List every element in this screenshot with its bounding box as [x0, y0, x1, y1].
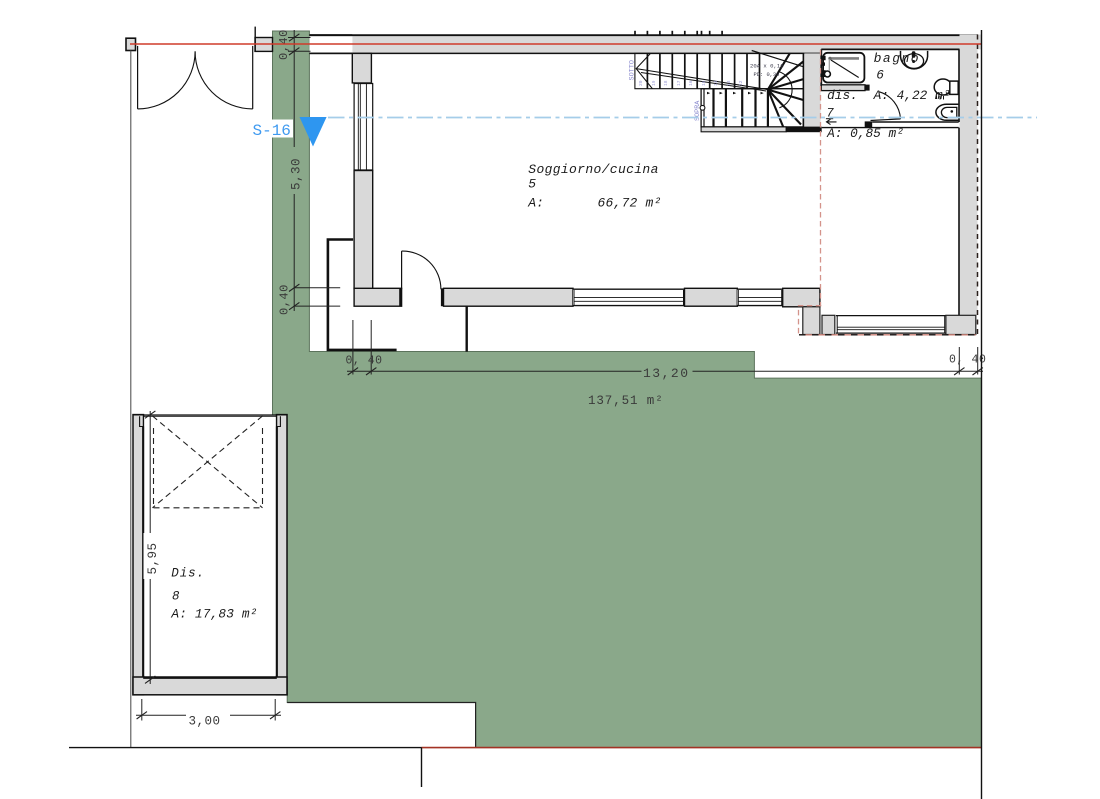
svg-text:Soggiorno/cucina: Soggiorno/cucina	[528, 162, 658, 177]
svg-text:5,95: 5,95	[146, 542, 160, 574]
svg-text:S-16: S-16	[253, 122, 291, 140]
svg-text:20A x 0,16: 20A x 0,16	[750, 62, 784, 69]
svg-text:13: 13	[726, 80, 732, 86]
svg-text:dis.: dis.	[827, 88, 858, 103]
svg-text:137,51 m²: 137,51 m²	[588, 394, 664, 408]
svg-text:bagno: bagno	[874, 51, 921, 66]
svg-text:A: 0,85 m²: A: 0,85 m²	[826, 126, 904, 141]
svg-text:20: 20	[638, 80, 644, 86]
svg-text:16: 16	[688, 80, 694, 86]
svg-text:14: 14	[713, 80, 719, 86]
svg-text:Dis.: Dis.	[171, 567, 205, 581]
svg-text:3,00: 3,00	[189, 715, 221, 729]
svg-text:19: 19	[651, 80, 657, 86]
svg-text:18: 18	[663, 80, 669, 86]
svg-text:A: 17,83 m²: A: 17,83 m²	[170, 606, 257, 621]
svg-text:5,30: 5,30	[290, 158, 304, 190]
svg-text:PD: 0,30: PD: 0,30	[754, 72, 780, 78]
svg-text:5: 5	[528, 176, 536, 191]
svg-text:15: 15	[701, 80, 707, 86]
svg-text:SOTTO: SOTTO	[629, 60, 637, 80]
svg-text:12: 12	[738, 80, 744, 86]
svg-text:A: 4,22 m²: A: 4,22 m²	[873, 88, 951, 103]
svg-text:6: 6	[876, 68, 884, 83]
svg-text:8: 8	[172, 590, 180, 604]
svg-text:0, 40: 0, 40	[346, 355, 383, 368]
svg-text:13,20: 13,20	[643, 366, 690, 381]
svg-text:17: 17	[676, 80, 682, 86]
svg-text:66,72 m²: 66,72 m²	[598, 196, 662, 211]
svg-text:A:: A:	[527, 196, 544, 211]
svg-text:0,40: 0,40	[278, 284, 292, 315]
